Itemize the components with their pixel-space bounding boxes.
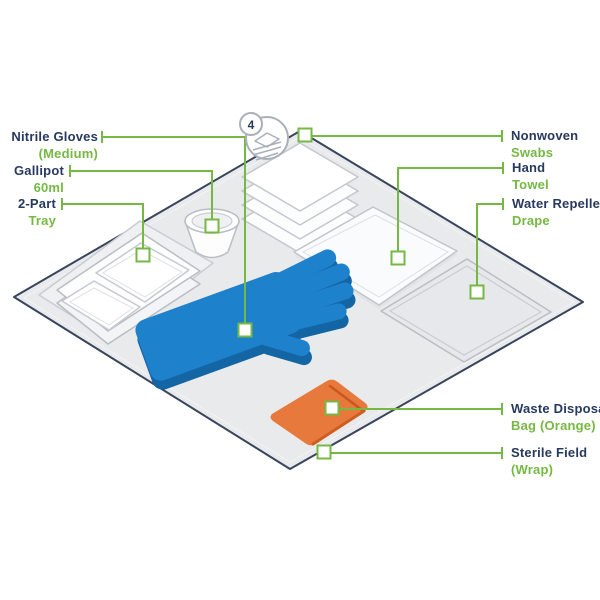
label-water-repellent-drape-name: Water Repellent: [512, 195, 600, 212]
label-gallipot-detail: 60ml: [14, 179, 64, 196]
marker-hand-towel-icon: [392, 252, 405, 265]
label-hand-towel: Hand Towel: [512, 159, 549, 193]
pack-diagram: 4 Nitrile Gloves (Medium) Gallipot 60ml …: [0, 0, 600, 600]
label-hand-towel-name: Hand: [512, 159, 549, 176]
label-gallipot-name: Gallipot: [14, 162, 64, 179]
leader-nonwoven-swabs: [312, 130, 502, 142]
swab-count-value: 4: [248, 118, 255, 132]
label-nitrile-gloves-detail: (Medium): [11, 145, 98, 162]
swab-count-badge: 4: [240, 113, 288, 160]
label-nitrile-gloves: Nitrile Gloves (Medium): [11, 128, 98, 162]
label-two-part-tray-name: 2-Part: [18, 195, 56, 212]
leader-sterile-field: [331, 447, 502, 459]
label-waste-disposal-bag-name: Waste Disposal: [511, 400, 600, 417]
label-water-repellent-drape: Water Repellent Drape: [512, 195, 600, 229]
label-gallipot: Gallipot 60ml: [14, 162, 64, 196]
label-two-part-tray: 2-Part Tray: [18, 195, 56, 229]
label-water-repellent-drape-detail: Drape: [512, 212, 600, 229]
pack-illustration: 4: [0, 0, 600, 600]
marker-waste-disposal-bag-icon: [326, 402, 339, 415]
marker-two-part-tray-icon: [137, 249, 150, 262]
marker-gallipot-icon: [206, 220, 219, 233]
label-sterile-field-name: Sterile Field: [511, 444, 587, 461]
label-sterile-field-detail: (Wrap): [511, 461, 587, 478]
label-nonwoven-swabs: Nonwoven Swabs: [511, 127, 578, 161]
label-waste-disposal-bag-detail: Bag (Orange): [511, 417, 600, 434]
marker-water-repellent-drape-icon: [471, 286, 484, 299]
label-sterile-field: Sterile Field (Wrap): [511, 444, 587, 478]
label-waste-disposal-bag: Waste Disposal Bag (Orange): [511, 400, 600, 434]
marker-sterile-field-icon: [318, 446, 331, 459]
marker-nonwoven-swabs-icon: [299, 129, 312, 142]
marker-nitrile-gloves-icon: [239, 324, 252, 337]
label-nitrile-gloves-name: Nitrile Gloves: [11, 128, 98, 145]
label-hand-towel-detail: Towel: [512, 176, 549, 193]
label-two-part-tray-detail: Tray: [18, 212, 56, 229]
label-nonwoven-swabs-name: Nonwoven: [511, 127, 578, 144]
